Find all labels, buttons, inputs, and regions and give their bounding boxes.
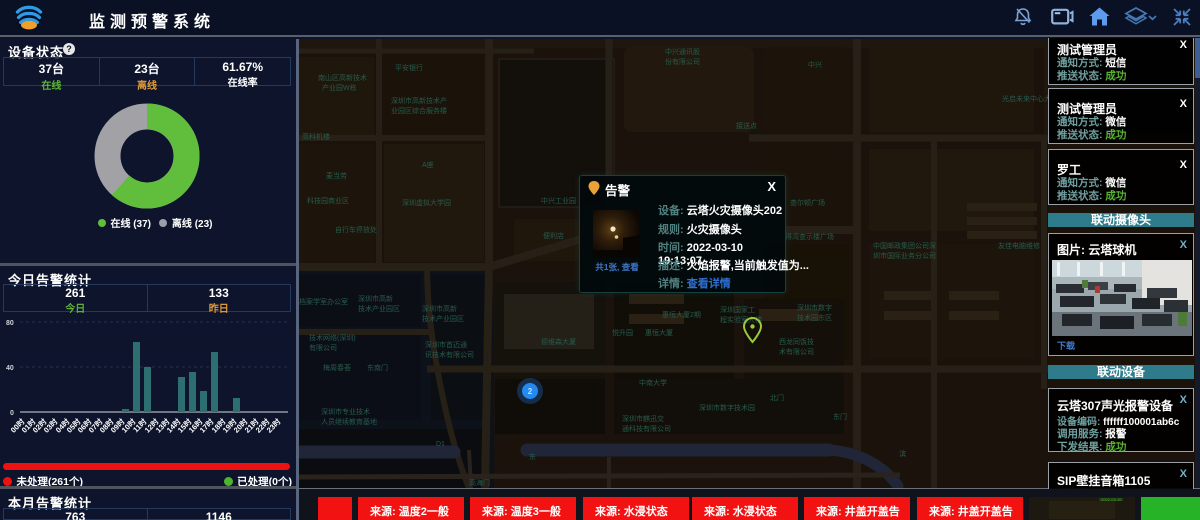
- svg-text:0: 0: [10, 410, 14, 417]
- svg-text:23时: 23时: [264, 416, 283, 435]
- svg-text:80: 80: [6, 320, 14, 327]
- svg-text:2: 2: [528, 387, 533, 396]
- svg-text:?: ?: [66, 44, 72, 54]
- svg-text:2022-03-10: 2022-03-10: [1101, 497, 1122, 502]
- svg-text:40: 40: [6, 365, 14, 372]
